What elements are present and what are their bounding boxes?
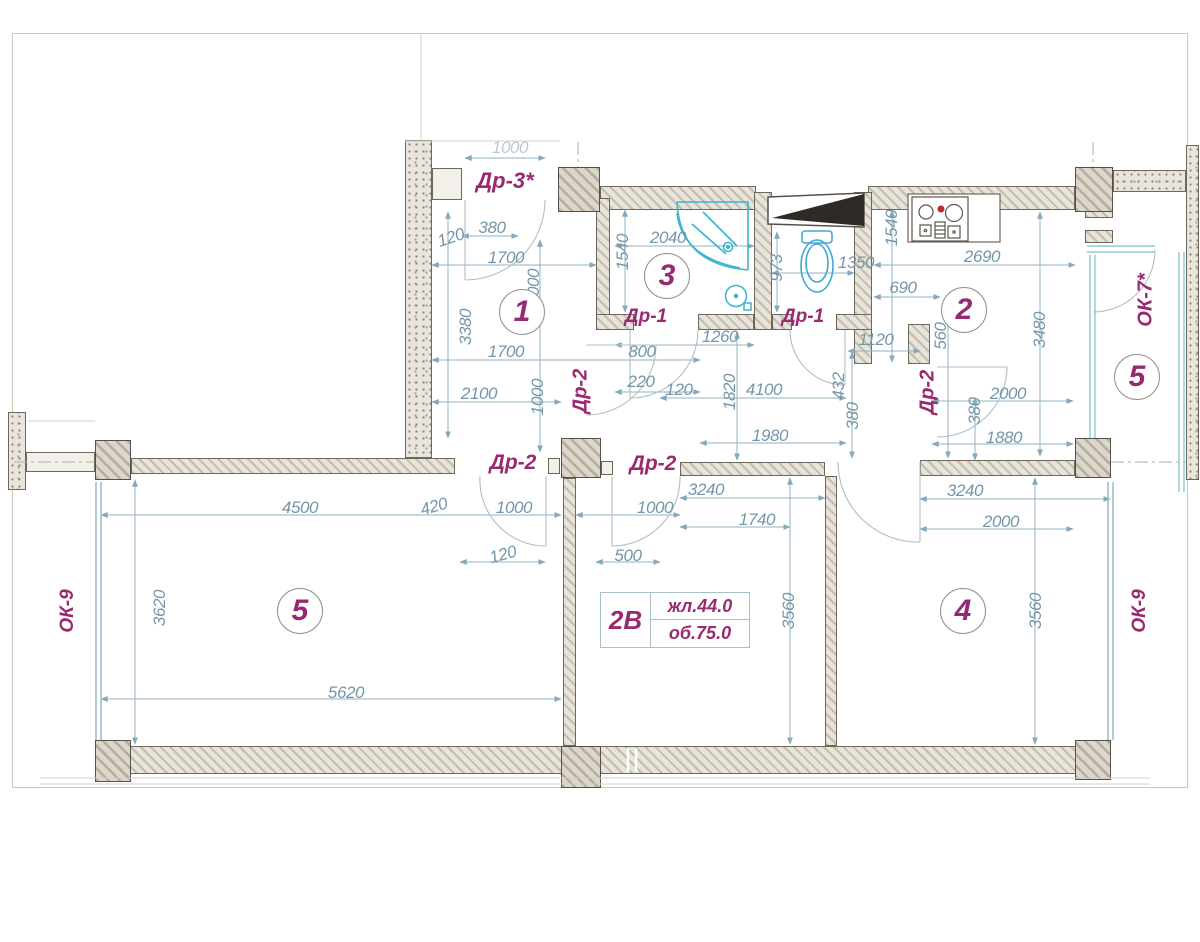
floor-plan-canvas: 1000380120170015402040973135069015402690… [0, 0, 1200, 942]
room-number-circle: 3 [644, 253, 690, 299]
dimension-label: 432 [829, 372, 849, 399]
dimension-label: 3240 [688, 480, 724, 500]
dimension-label: 220 [627, 372, 654, 392]
opening-label: ОК-9 [1129, 589, 1151, 632]
dimension-label: 1120 [859, 330, 894, 350]
room-number-circle: 2 [941, 287, 987, 333]
dimension-label: 2100 [461, 384, 497, 404]
dimension-label: 1540 [613, 234, 633, 270]
opening-label: Др-1 [782, 306, 824, 328]
dimension-label: 1980 [752, 426, 788, 446]
dimension-label: 3560 [1026, 593, 1046, 629]
dimension-label: 2040 [650, 228, 686, 248]
dimension-label: 380 [843, 402, 863, 429]
apartment-areas: жл.44.0 об.75.0 [651, 593, 749, 647]
dimension-label: 120 [487, 542, 518, 568]
dimension-label: 3240 [947, 481, 983, 501]
dimension-label: 380 [478, 218, 505, 238]
dimension-label: 690 [889, 278, 916, 298]
room-number-circle: 5 [1114, 354, 1160, 400]
opening-label: ОК-9 [57, 589, 79, 632]
labels-layer: 1000380120170015402040973135069015402690… [0, 0, 1200, 942]
opening-label: Др-3* [476, 168, 533, 194]
dimension-label: 120 [435, 224, 467, 251]
dimension-label: 1000 [492, 138, 528, 158]
dimension-label: 3620 [150, 590, 170, 626]
dimension-label: 1350 [838, 253, 874, 273]
dimension-label: 3560 [779, 593, 799, 629]
dimension-label: 1000 [637, 498, 673, 518]
opening-label: Др-2 [570, 369, 593, 413]
apartment-info-box: 2В жл.44.0 об.75.0 [600, 592, 750, 648]
apartment-living-area: жл.44.0 [651, 593, 749, 620]
opening-label: Др-2 [917, 370, 940, 414]
dimension-label: 2690 [964, 247, 1000, 267]
room-number-circle: 5 [277, 588, 323, 634]
opening-label: Др-1 [625, 306, 667, 328]
dimension-label: 4100 [746, 380, 782, 400]
dimension-label: 2000 [990, 384, 1026, 404]
dimension-label: 120 [665, 380, 692, 400]
dimension-label: 800 [628, 342, 655, 362]
dimension-label: 4500 [282, 498, 318, 518]
dimension-label: 973 [767, 254, 787, 281]
dimension-label: 1740 [739, 510, 775, 530]
dimension-label: 1880 [986, 428, 1022, 448]
dimension-label: 420 [418, 494, 449, 520]
dimension-label: 1820 [720, 374, 740, 410]
opening-label: Др-2 [630, 452, 677, 476]
dimension-label: 2000 [983, 512, 1019, 532]
room-number-circle: 1 [499, 289, 545, 335]
dimension-label: 1700 [488, 342, 524, 362]
dimension-label: 1000 [496, 498, 532, 518]
dimension-label: 3480 [1030, 312, 1050, 348]
dimension-label: 3380 [456, 309, 476, 345]
dimension-label: 5620 [328, 683, 364, 703]
dimension-label: 1260 [702, 327, 738, 347]
dimension-label: 1700 [488, 248, 524, 268]
opening-label: Др-2 [490, 451, 537, 475]
dimension-label: 500 [614, 546, 641, 566]
opening-label: ОК-7* [1135, 273, 1158, 326]
apartment-type: 2В [601, 593, 651, 647]
dimension-label: 1540 [882, 210, 902, 246]
dimension-label: 1000 [528, 379, 548, 415]
dimension-label: 380 [965, 397, 985, 424]
apartment-total-area: об.75.0 [651, 620, 749, 647]
room-number-circle: 4 [940, 588, 986, 634]
